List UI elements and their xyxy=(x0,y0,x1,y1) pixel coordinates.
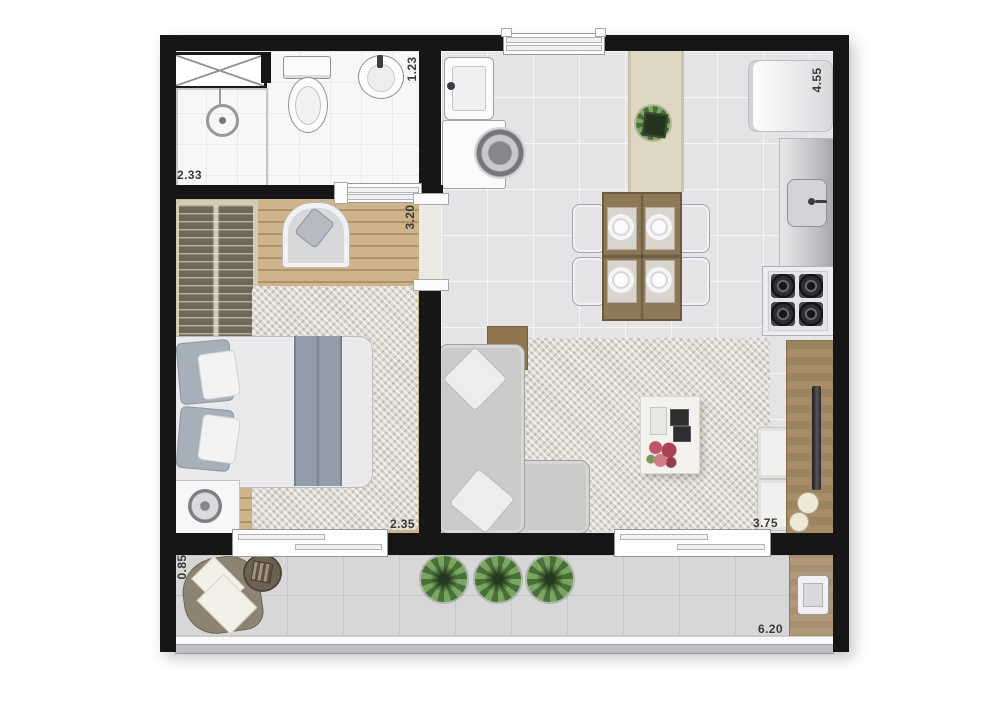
wall-divider-upper xyxy=(419,35,441,202)
window-jamb xyxy=(595,28,606,37)
wall-divider-lower xyxy=(419,282,441,555)
door-panel xyxy=(295,544,383,550)
plate-icon xyxy=(608,214,634,240)
washbasin-bowl-icon xyxy=(367,64,395,92)
wall-left xyxy=(160,35,176,652)
bed-runner-icon xyxy=(294,336,342,486)
plate-icon xyxy=(608,267,634,293)
balcony-railing-base xyxy=(175,644,834,654)
dimension-label-balcony-depth: 0.85 xyxy=(175,549,189,585)
kitchen-faucet-icon xyxy=(808,198,815,205)
books-icon xyxy=(650,407,667,435)
decor-icon xyxy=(797,492,819,514)
burner-icon xyxy=(799,274,823,298)
dimension-label-bedroom-width: 2.35 xyxy=(390,517,415,531)
plate-icon xyxy=(646,267,672,293)
pillow-icon xyxy=(197,350,241,401)
toilet-tank-icon xyxy=(283,56,331,79)
pillow-icon xyxy=(197,414,241,465)
dimension-label-bedroom-depth: 3.20 xyxy=(403,199,417,235)
wall-balcony xyxy=(769,533,849,555)
balcony-plant-icon xyxy=(475,556,521,602)
floor-plan-canvas: 2.33 1.23 3.20 2.35 4.55 3.75 0.85 6.20 xyxy=(0,0,1000,721)
wall-right xyxy=(833,35,849,652)
bedroom-balcony-sliding-door xyxy=(232,529,388,557)
door-jamb xyxy=(413,279,449,291)
door-panel xyxy=(677,544,765,550)
bedside-lamp-icon xyxy=(188,489,222,523)
door-jamb xyxy=(413,193,449,205)
laundry-basin-icon xyxy=(452,66,486,111)
wall-balcony xyxy=(160,533,234,555)
toilet-seat-icon xyxy=(295,86,321,125)
wall-stub xyxy=(261,52,271,83)
door-rail xyxy=(345,187,420,193)
shower-head-icon xyxy=(206,104,239,137)
door-panel xyxy=(238,534,326,540)
living-balcony-sliding-door xyxy=(614,529,771,557)
shower-box-icon xyxy=(172,52,267,89)
window-rail xyxy=(506,37,602,43)
burner-icon xyxy=(799,302,823,326)
burner-icon xyxy=(771,274,795,298)
flower-vase-icon xyxy=(646,438,678,470)
wall-balcony xyxy=(386,533,616,555)
side-table-decor-icon xyxy=(250,560,273,583)
window-jamb xyxy=(501,28,512,37)
doorway-threshold xyxy=(419,202,441,282)
plate-icon xyxy=(646,214,672,240)
door-panel xyxy=(620,534,708,540)
tray-icon xyxy=(670,409,689,426)
faucet-icon xyxy=(377,55,383,68)
kitchen-faucet-arm-icon xyxy=(815,200,827,203)
plant-pot-icon xyxy=(642,112,669,139)
kitchen-window xyxy=(503,33,605,55)
dining-chair-icon xyxy=(572,257,606,306)
dimension-label-kitchen-depth: 4.55 xyxy=(810,62,824,98)
dimension-label-living-width: 3.75 xyxy=(753,516,778,530)
washer-drum-icon xyxy=(474,127,526,179)
balcony-appliance-door-icon xyxy=(803,583,823,607)
kitchen-sink-icon xyxy=(787,179,827,227)
dimension-label-balcony-width: 6.20 xyxy=(758,622,783,636)
dimension-label-bathroom-width: 2.33 xyxy=(177,168,202,182)
decor-icon xyxy=(789,512,809,532)
wall-bathroom-south xyxy=(160,185,344,199)
balcony-plant-icon xyxy=(527,556,573,602)
door-jamb xyxy=(334,182,348,204)
tv-icon xyxy=(812,386,821,490)
dimension-label-bathroom-depth: 1.23 xyxy=(405,51,419,87)
window-rail xyxy=(506,45,602,51)
burner-icon xyxy=(771,302,795,326)
dining-chair-icon xyxy=(572,204,606,253)
laundry-faucet-icon xyxy=(447,82,455,90)
balcony-plant-icon xyxy=(421,556,467,602)
